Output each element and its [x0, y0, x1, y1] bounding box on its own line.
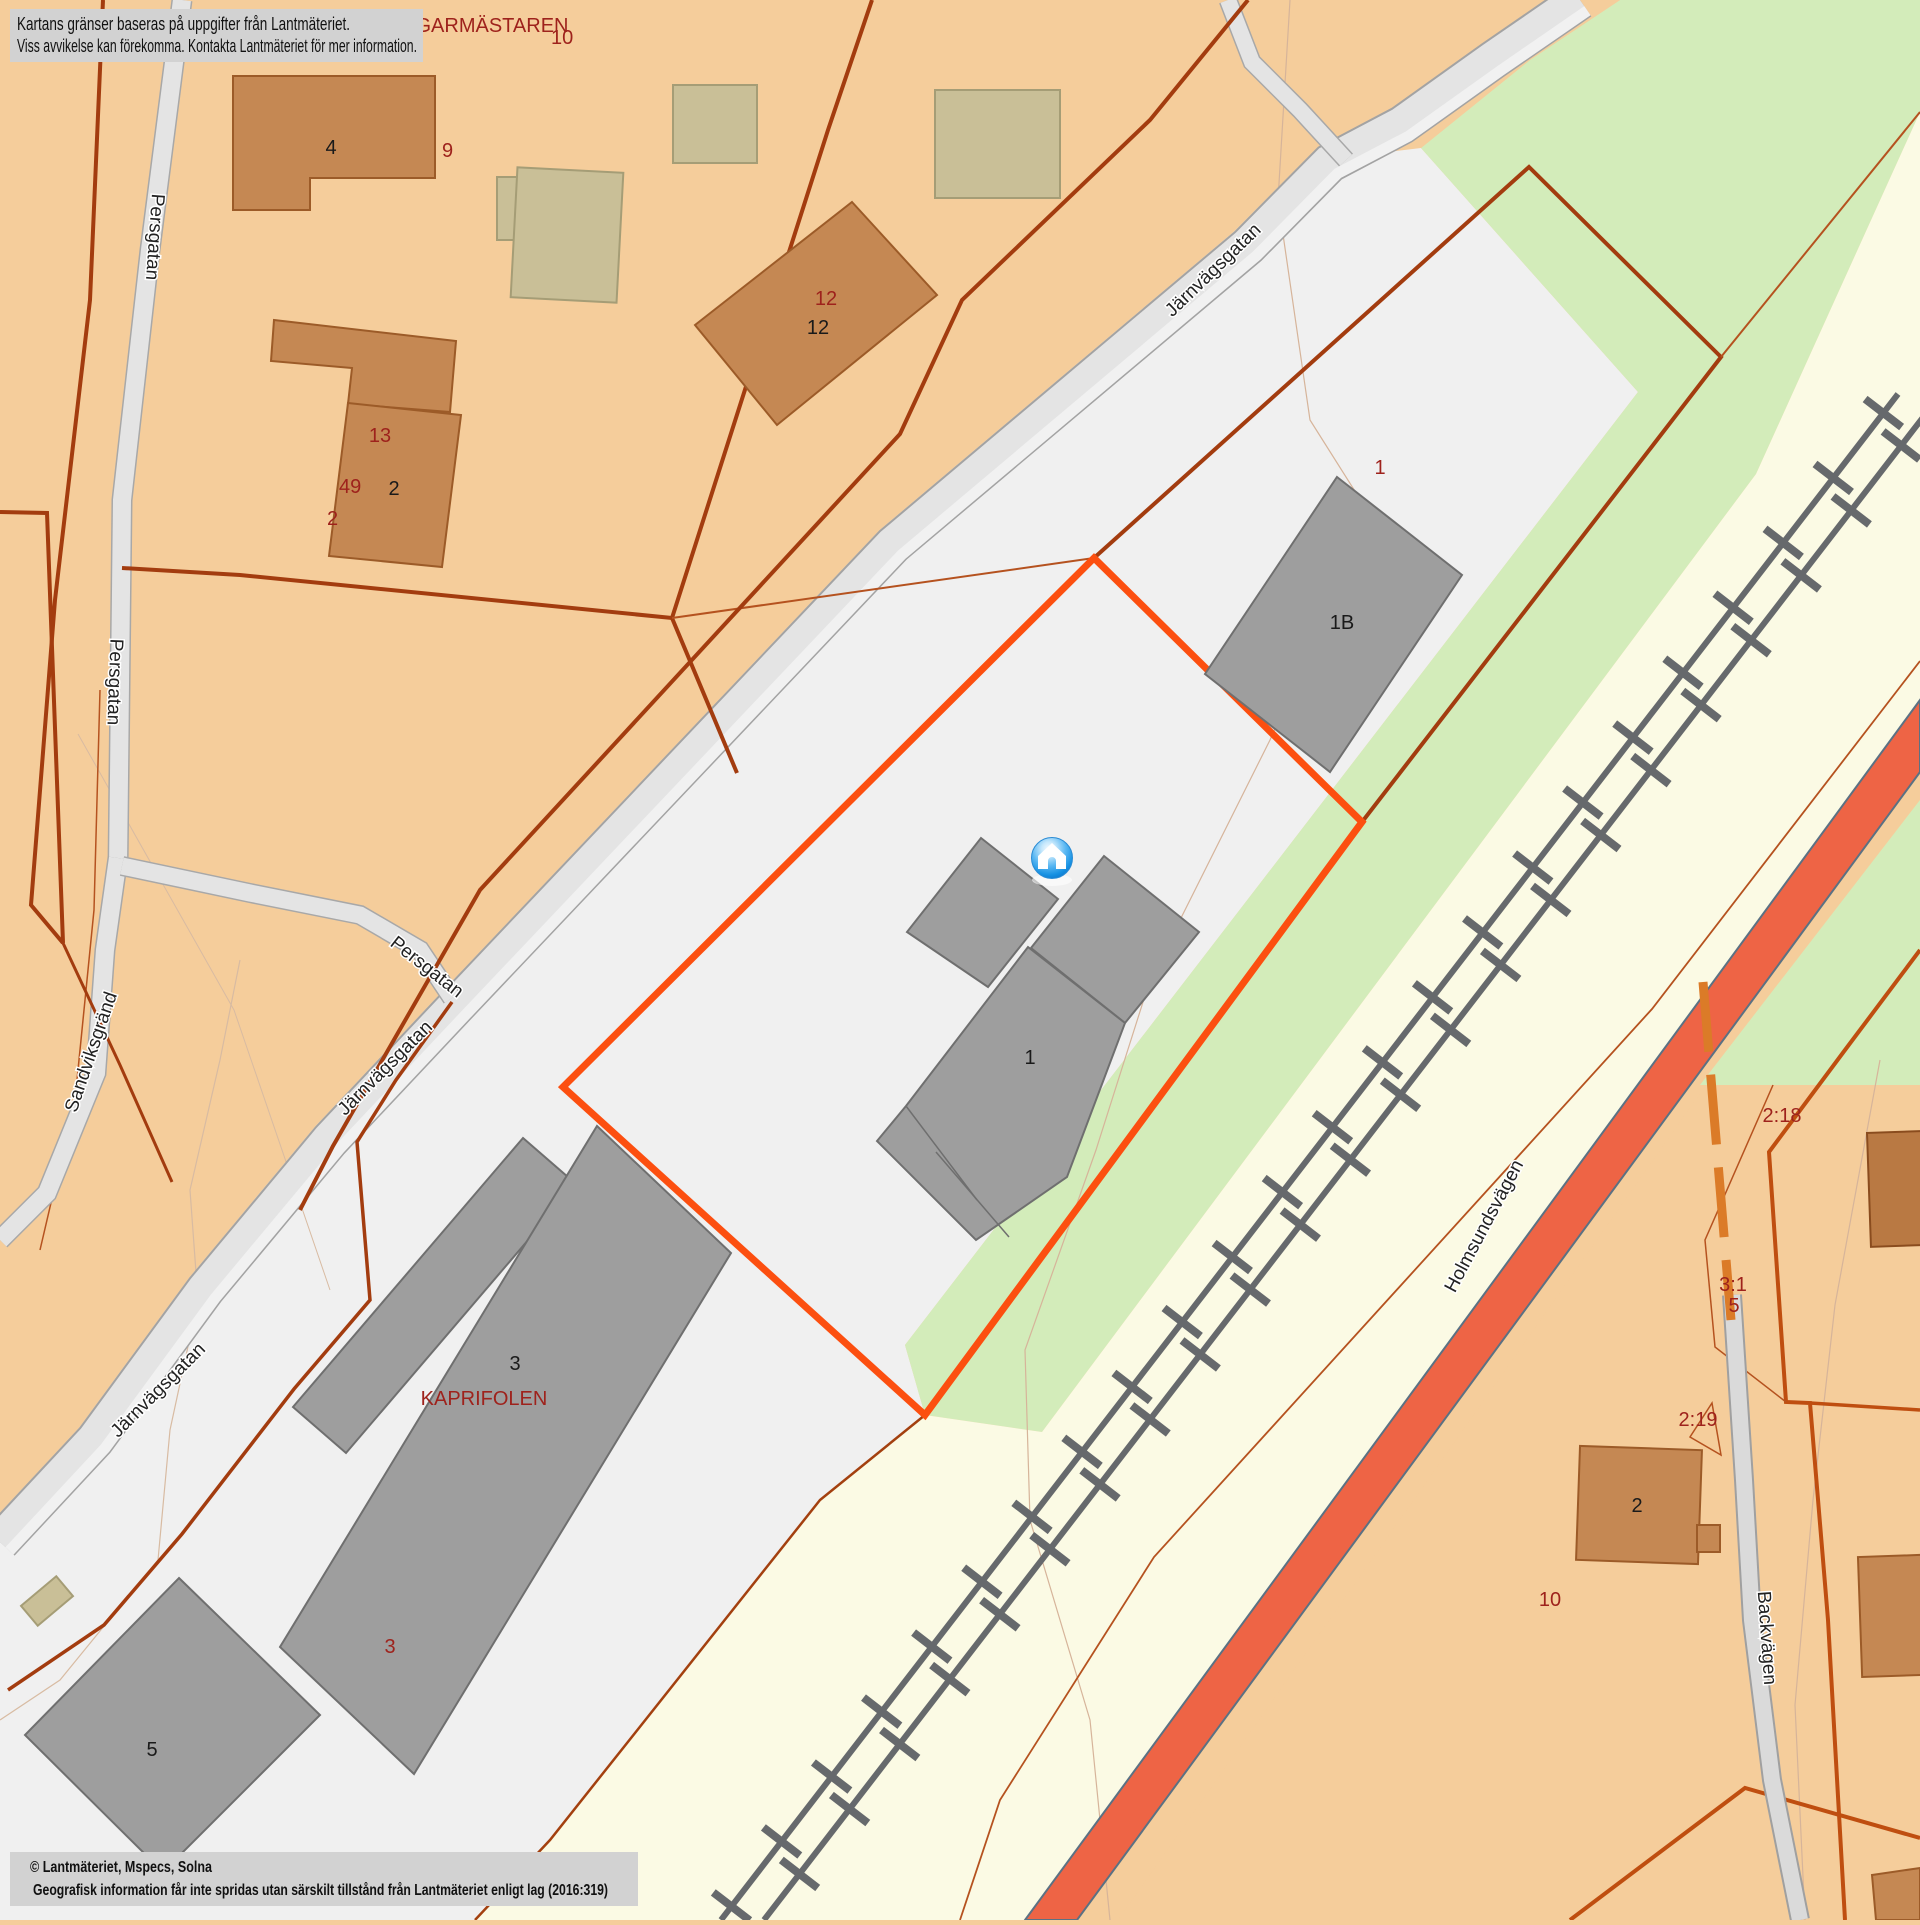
svg-text:9: 9 — [442, 140, 453, 162]
svg-text:Geografisk information får int: Geografisk information får inte spridas … — [33, 1881, 608, 1899]
svg-text:5: 5 — [1728, 1295, 1739, 1317]
svg-text:2: 2 — [327, 508, 338, 530]
svg-text:© Lantmäteriet, Mspecs, Solna: © Lantmäteriet, Mspecs, Solna — [30, 1859, 212, 1876]
svg-text:12: 12 — [815, 288, 837, 310]
svg-text:4: 4 — [325, 137, 336, 159]
svg-text:2:18: 2:18 — [1763, 1105, 1802, 1127]
svg-text:5: 5 — [146, 1739, 157, 1761]
svg-text:10: 10 — [551, 27, 573, 49]
svg-text:2:19: 2:19 — [1679, 1409, 1718, 1431]
svg-text:1B: 1B — [1330, 612, 1354, 634]
svg-text:Kartans gränser baseras på upp: Kartans gränser baseras på uppgifter frå… — [17, 14, 350, 34]
svg-text:Persgatan: Persgatan — [102, 638, 126, 725]
svg-text:2: 2 — [1631, 1495, 1642, 1517]
svg-text:KAPRIFOLEN: KAPRIFOLEN — [421, 1388, 548, 1410]
svg-text:49: 49 — [339, 476, 361, 498]
svg-text:3: 3 — [509, 1353, 520, 1375]
svg-text:1: 1 — [1024, 1047, 1035, 1069]
svg-text:GARMÄSTAREN: GARMÄSTAREN — [416, 15, 569, 37]
svg-text:10: 10 — [1539, 1589, 1561, 1611]
svg-text:Viss avvikelse kan förekomma.: Viss avvikelse kan förekomma. Kontakta L… — [17, 36, 417, 56]
svg-text:3:1: 3:1 — [1719, 1274, 1747, 1296]
svg-text:12: 12 — [807, 317, 829, 339]
svg-text:1: 1 — [1374, 457, 1385, 479]
svg-text:3: 3 — [384, 1636, 395, 1658]
svg-text:13: 13 — [369, 425, 391, 447]
svg-text:2: 2 — [388, 478, 399, 500]
